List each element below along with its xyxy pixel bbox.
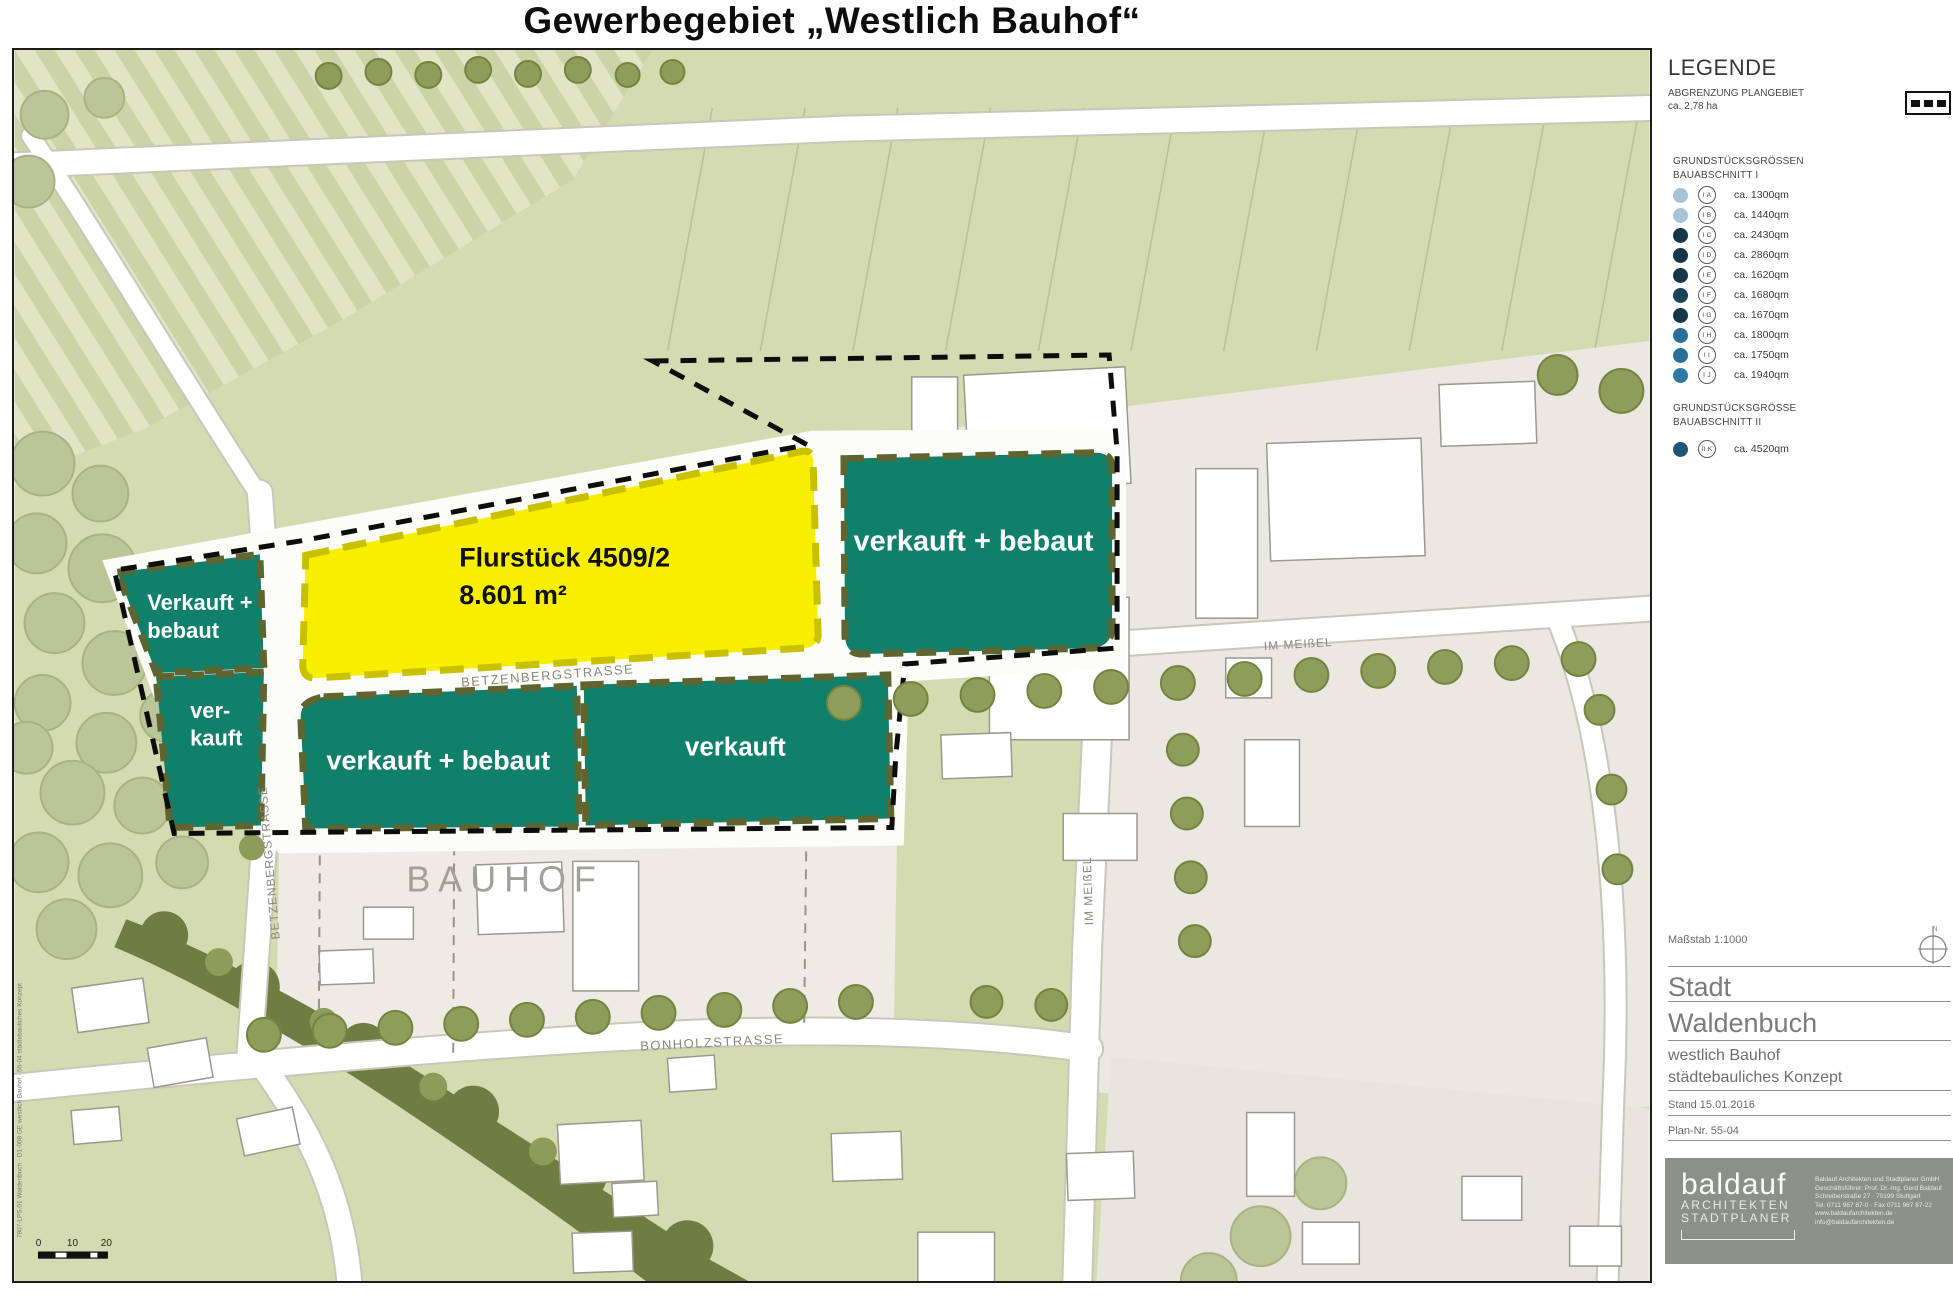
legend-item: I Ica. 1750qm (1673, 345, 1943, 365)
plot-id-badge: II K (1698, 440, 1716, 458)
tree-icon (773, 989, 807, 1023)
tree-icon (1600, 369, 1644, 413)
tree-icon (1538, 355, 1578, 395)
building (912, 377, 958, 435)
legend-section1-line2: BAUABSCHNITT I (1673, 169, 1804, 183)
tree-icon (1294, 1157, 1346, 1209)
tree-icon (313, 1014, 347, 1048)
flurstueck-label-line1: Flurstück 4509/2 (459, 542, 670, 572)
plot-id-badge: I B (1698, 206, 1716, 224)
tree-icon (1228, 662, 1262, 696)
plot-color-dot-icon (1673, 248, 1688, 263)
tree-icon (415, 62, 441, 88)
legend-item: I Fca. 1680qm (1673, 285, 1943, 305)
parcel-label-mitte-links: verkauft + bebaut (327, 746, 551, 776)
legend-item: I Eca. 1620qm (1673, 265, 1943, 285)
tree-icon (1562, 642, 1596, 676)
plot-color-dot-icon (1673, 328, 1688, 343)
forest-tree-icon (447, 1086, 499, 1138)
tree-icon (1161, 666, 1195, 700)
plot-id-badge: I G (1698, 306, 1716, 324)
plot-color-dot-icon (1673, 268, 1688, 283)
plan-number: Plan-Nr. 55-04 (1668, 1125, 1739, 1137)
tree-icon (576, 1000, 610, 1034)
parcel-label-ost: verkauft + bebaut (854, 525, 1094, 557)
plot-stamp: 7807-LPS.01 Waldenbuch · D1-008 GE westl… (17, 983, 24, 1238)
tree-icon (1175, 861, 1207, 893)
site-plan-svg: Flurstück 4509/2 8.601 m² Verkauft + beb… (14, 50, 1650, 1281)
tree-icon (827, 686, 861, 720)
plot-id-badge: I E (1698, 266, 1716, 284)
tree-icon (1027, 674, 1061, 708)
tree-icon (14, 432, 74, 496)
parcel-label-mitte-rechts: verkauft (685, 734, 786, 762)
tree-icon (72, 466, 128, 522)
plot-id-badge: I A (1698, 186, 1716, 204)
tree-icon (1597, 775, 1627, 805)
tree-icon (14, 832, 68, 892)
legend-item: I Cca. 2430qm (1673, 225, 1943, 245)
tree-icon (1428, 650, 1462, 684)
scale-tick-20: 20 (101, 1238, 113, 1249)
legend-item: I Hca. 1800qm (1673, 325, 1943, 345)
plot-color-dot-icon (1673, 228, 1688, 243)
firm-logo-name: baldauf (1681, 1171, 1803, 1199)
tree-icon (1171, 798, 1203, 830)
tree-icon (1294, 658, 1328, 692)
plot-color-dot-icon (1673, 188, 1688, 203)
plot-id-badge: I D (1698, 246, 1716, 264)
tree-icon (515, 61, 541, 87)
forest-tree-icon (529, 1137, 557, 1165)
city-line2: Waldenbuch (1668, 1008, 1817, 1039)
firm-logo: baldauf ARCHITEKTEN STADTPLANER (1681, 1171, 1803, 1264)
tree-icon (14, 156, 55, 208)
parcel-label-west-line1: Verkauft + (147, 590, 252, 615)
plot-id-badge: I H (1698, 326, 1716, 344)
building (71, 1107, 122, 1145)
site-plan-map: Flurstück 4509/2 8.601 m² Verkauft + beb… (12, 48, 1652, 1283)
tree-icon (971, 986, 1003, 1018)
building (572, 1231, 633, 1273)
legend-section2-line2: BAUABSCHNITT II (1673, 416, 1796, 430)
tree-icon (1179, 925, 1211, 957)
flurstueck-label-line2: 8.601 m² (459, 580, 567, 610)
tree-icon (1361, 654, 1395, 688)
parcel-label-west-line2: bebaut (147, 618, 220, 643)
plot-color-dot-icon (1673, 208, 1688, 223)
tree-icon (37, 899, 97, 959)
building (1063, 814, 1137, 861)
forest-tree-icon (662, 1220, 714, 1272)
building (1267, 438, 1426, 561)
plot-area-label: ca. 1620qm (1734, 269, 1789, 281)
building (831, 1131, 902, 1181)
tree-icon (1495, 646, 1529, 680)
legend-item: II Kca. 4520qm (1673, 439, 1943, 459)
tree-icon (78, 843, 142, 907)
plot-color-dot-icon (1673, 442, 1688, 457)
building (667, 1055, 716, 1092)
tree-icon (444, 1007, 478, 1041)
tree-icon (839, 985, 873, 1019)
plot-area-label: ca. 1940qm (1734, 369, 1789, 381)
building (612, 1181, 659, 1217)
building (941, 733, 1012, 779)
firm-info-line: Geschäftsführer: Prof. Dr.-Ing. Gerd Bal… (1815, 1185, 1945, 1194)
legend-item: I Bca. 1440qm (1673, 205, 1943, 225)
tree-icon (616, 63, 640, 87)
plot-area-label: ca. 1680qm (1734, 289, 1789, 301)
tree-icon (14, 513, 66, 573)
plot-area-label: ca. 4520qm (1734, 443, 1789, 455)
tree-icon (1035, 989, 1067, 1021)
tree-icon (961, 678, 995, 712)
building (1439, 381, 1537, 446)
building (1196, 469, 1258, 619)
tree-icon (1094, 670, 1128, 704)
city-line1: Stadt (1668, 972, 1731, 1003)
scale-tick-0: 0 (36, 1238, 42, 1249)
legend-item: I Aca. 1300qm (1673, 185, 1943, 205)
legend-section2-line1: GRUNDSTÜCKSGRÖSSE (1673, 402, 1796, 416)
plot-area-label: ca. 1300qm (1734, 189, 1789, 201)
plot-id-badge: I F (1698, 286, 1716, 304)
plot-color-dot-icon (1673, 348, 1688, 363)
firm-contact-info: Baldauf Architekten und Stadtplaner GmbH… (1815, 1176, 1945, 1264)
project-line2: städtebauliches Konzept (1668, 1069, 1842, 1087)
tree-icon (1231, 1206, 1291, 1266)
legend-section-2: GRUNDSTÜCKSGRÖSSE BAUABSCHNITT II (1673, 402, 1796, 429)
legend-item: I Gca. 1670qm (1673, 305, 1943, 325)
plot-id-badge: I J (1698, 366, 1716, 384)
firm-logo-bracket (1681, 1230, 1795, 1240)
plot-area-label: ca. 1670qm (1734, 309, 1789, 321)
tree-icon (316, 63, 342, 89)
legend-item: I Jca. 1940qm (1673, 365, 1943, 385)
tree-icon (465, 57, 491, 83)
tree-icon (366, 59, 392, 85)
building (1066, 1151, 1134, 1200)
forest-tree-icon (419, 1073, 447, 1101)
tree-icon (642, 996, 676, 1030)
tree-icon (84, 78, 124, 118)
legend-section-1: GRUNDSTÜCKSGRÖSSEN BAUABSCHNITT I (1673, 155, 1804, 182)
page-title: Gewerbegebiet „Westlich Bauhof“ (12, 0, 1652, 42)
legend-boundary-line1: ABGRENZUNG PLANGEBIET (1668, 87, 1804, 100)
bauhof-label: BAUHOF (406, 859, 603, 899)
plot-area-label: ca. 1750qm (1734, 349, 1789, 361)
building (1247, 1113, 1295, 1197)
plan-boundary-symbol-icon (1905, 91, 1951, 115)
plot-color-dot-icon (1673, 288, 1688, 303)
firm-info-line: Tel. 0711 967 87-0 · Fax 0711 967 87-22 (1815, 1202, 1945, 1211)
building (364, 907, 414, 939)
tree-icon (114, 778, 170, 834)
street-label-im-meissel-v: IM MEIßEL (1080, 856, 1096, 925)
firm-block: baldauf ARCHITEKTEN STADTPLANER Baldauf … (1665, 1158, 1953, 1264)
forest-tree-icon (140, 911, 188, 959)
forest-tree-icon (205, 948, 233, 976)
tree-icon (378, 1011, 412, 1045)
legend-heading: LEGENDE (1668, 55, 1777, 81)
firm-info-line: Schreiberstraße 27 · 70199 Stuttgart (1815, 1193, 1945, 1202)
project-line1: westlich Bauhof (1668, 1047, 1780, 1065)
stand-date: Stand 15.01.2016 (1668, 1099, 1755, 1111)
legend-item: I Dca. 2860qm (1673, 245, 1943, 265)
tree-icon (247, 1018, 281, 1052)
north-arrow-icon: N (1915, 924, 1951, 971)
plot-color-dot-icon (1673, 368, 1688, 383)
tree-icon (25, 593, 85, 653)
legend-items-bauabschnitt-2: II Kca. 4520qm (1673, 439, 1943, 459)
building (1462, 1176, 1522, 1220)
scale-tick-10: 10 (67, 1238, 79, 1249)
tree-icon (1585, 695, 1615, 725)
tree-icon (894, 682, 928, 716)
building (1302, 1222, 1359, 1264)
tree-icon (1602, 854, 1632, 884)
parcel-label-west2-line1: ver- (190, 698, 230, 723)
tree-icon (510, 1003, 544, 1037)
building (557, 1120, 644, 1184)
building (918, 1232, 995, 1281)
building (1245, 740, 1300, 827)
tree-icon (565, 57, 591, 83)
tree-icon (156, 836, 208, 888)
tree-icon (707, 993, 741, 1027)
building (72, 978, 149, 1032)
building (319, 949, 374, 985)
firm-logo-sub2: STADTPLANER (1681, 1212, 1803, 1225)
firm-info-line: www.baldaufarchitekten.de · info@baldauf… (1815, 1210, 1945, 1227)
tree-icon (661, 60, 685, 84)
plot-id-badge: I I (1698, 346, 1716, 364)
tree-icon (41, 761, 105, 825)
legend-section1-line1: GRUNDSTÜCKSGRÖSSEN (1673, 155, 1804, 169)
building (1570, 1226, 1622, 1266)
plot-area-label: ca. 2430qm (1734, 229, 1789, 241)
plot-id-badge: I C (1698, 226, 1716, 244)
plot-area-label: ca. 2860qm (1734, 249, 1789, 261)
scale-label: Maßstab 1:1000 (1668, 934, 1748, 946)
parcel-label-west2-line2: kauft (190, 726, 243, 751)
tree-icon (21, 91, 69, 139)
plot-area-label: ca. 1440qm (1734, 209, 1789, 221)
plot-color-dot-icon (1673, 308, 1688, 323)
tree-icon (1167, 734, 1199, 766)
plan-sheet: Gewerbegebiet „Westlich Bauhof“ (0, 0, 1953, 1306)
legend-boundary-line2: ca. 2,78 ha (1668, 100, 1804, 113)
firm-info-line: Baldauf Architekten und Stadtplaner GmbH (1815, 1176, 1945, 1185)
plot-area-label: ca. 1800qm (1734, 329, 1789, 341)
legend-items-bauabschnitt-1: I Aca. 1300qmI Bca. 1440qmI Cca. 2430qmI… (1673, 185, 1943, 385)
legend-boundary-label: ABGRENZUNG PLANGEBIET ca. 2,78 ha (1668, 87, 1804, 113)
